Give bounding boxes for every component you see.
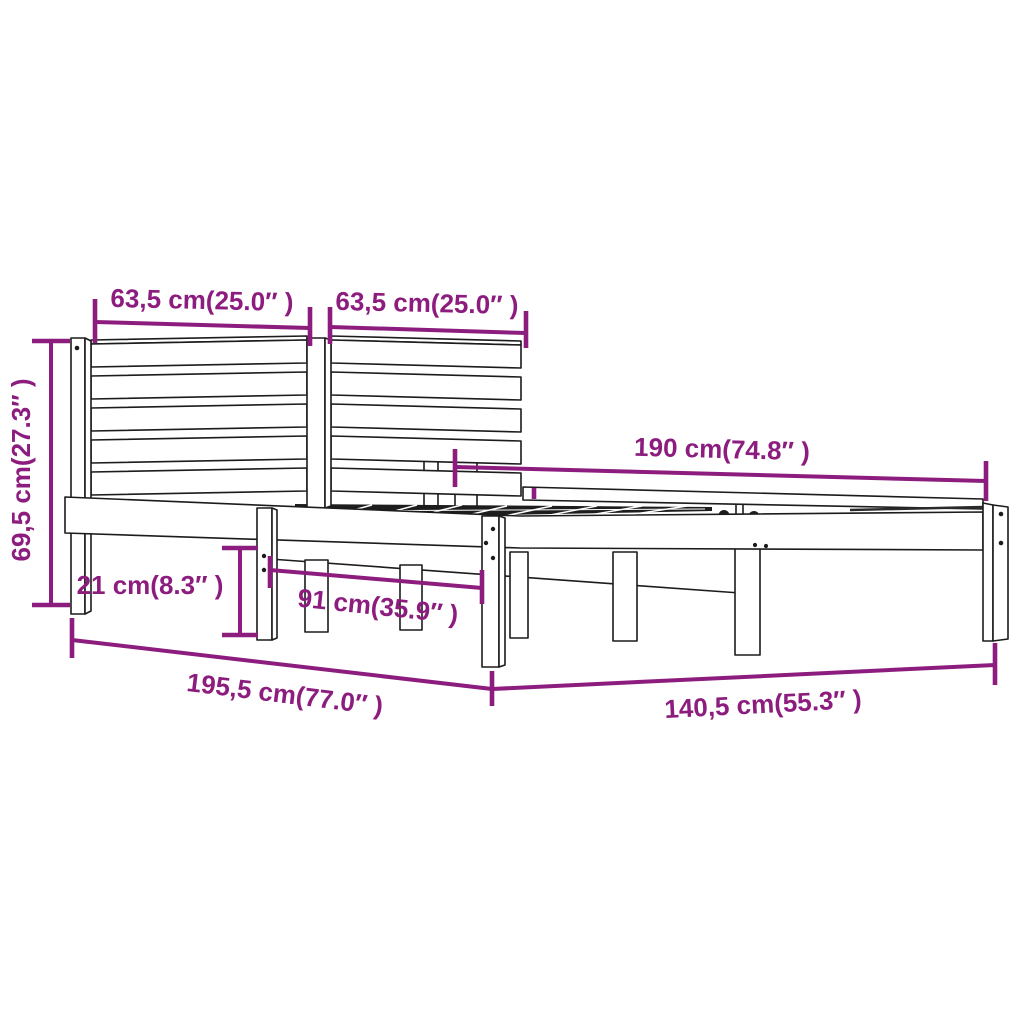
front-leg-side — [272, 508, 277, 640]
foot-corner-post — [983, 503, 993, 641]
dimension-label-headboard-height: 69,5 cm(27.3″ ) — [6, 378, 36, 561]
screw — [262, 568, 266, 572]
dimension-label-inner-length: 190 cm(74.8″ ) — [634, 432, 811, 467]
headboard-board — [91, 404, 307, 431]
far-leg — [613, 552, 637, 641]
headboard-centre-post-side — [325, 338, 331, 508]
headboard-board — [331, 468, 521, 496]
foot-corner-post-side — [993, 505, 1008, 641]
screw — [999, 512, 1004, 517]
dimension-label-total-length: 195,5 cm(77.0″ ) — [185, 667, 385, 721]
headboard-board — [91, 340, 307, 367]
dimension-headboard-height: 69,5 cm(27.3″ ) — [6, 341, 70, 605]
screw — [262, 554, 266, 558]
headboard-board — [331, 436, 521, 464]
dimension-label-headboard-right: 63,5 cm(25.0″ ) — [335, 286, 519, 320]
front-leg — [482, 516, 499, 667]
dimension-total-length: 195,5 cm(77.0″ ) — [72, 618, 492, 721]
screw — [484, 541, 488, 545]
headboard-board — [331, 340, 521, 368]
headboard-board — [331, 372, 521, 400]
headboard-board — [331, 404, 521, 432]
headboard-centre-post — [307, 338, 325, 508]
far-leg — [510, 552, 528, 638]
screw — [75, 346, 80, 351]
headboard-board — [91, 436, 307, 463]
headboard-board — [91, 468, 307, 495]
front-leg-side — [499, 516, 505, 667]
screw — [999, 541, 1004, 546]
dimension-inner-length: 190 cm(74.8″ ) — [455, 432, 986, 501]
dimension-label-rail-height: 21 cm(8.3″ ) — [77, 570, 224, 600]
screw — [753, 543, 757, 547]
screw — [491, 556, 495, 560]
bed-frame-diagram-canvas: 63,5 cm(25.0″ ) 63,5 cm(25.0″ ) 190 cm(7… — [0, 0, 1024, 1024]
headboard-board — [91, 372, 307, 399]
far-side-rail — [523, 487, 983, 509]
dimension-rail-height: 21 cm(8.3″ ) — [77, 548, 258, 635]
product-dimension-diagram: 63,5 cm(25.0″ ) 63,5 cm(25.0″ ) 190 cm(7… — [0, 0, 1024, 1024]
screw — [764, 544, 768, 548]
far-leg — [735, 548, 760, 655]
dimension-label-total-width: 140,5 cm(55.3″ ) — [664, 684, 863, 724]
screw — [491, 527, 495, 531]
dimension-label-headboard-left: 63,5 cm(25.0″ ) — [110, 283, 294, 317]
